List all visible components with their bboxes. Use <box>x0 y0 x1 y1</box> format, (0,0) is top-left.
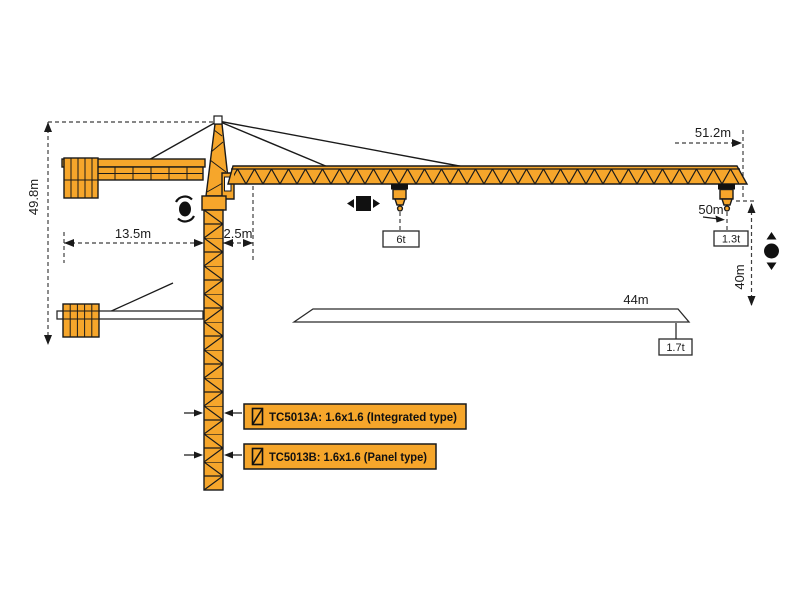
crane-diagram-page: 49.8m 13.5m 2.5m 51.2m 40m 50m <box>0 0 800 600</box>
max-load-tag: 6t <box>383 231 419 247</box>
dim-mid-radius-label: 44m <box>623 292 648 307</box>
tip-load-value: 1.3t <box>722 234 740 246</box>
dim-counter-jib-label: 13.5m <box>115 226 151 241</box>
slewing-platform <box>202 196 226 210</box>
dim-lift-height-label: 40m <box>732 264 747 289</box>
trolley-travel-icon <box>347 196 380 211</box>
mid-load-value: 1.7t <box>666 342 684 354</box>
load-curve-beam: 44m 1.7t <box>294 292 692 355</box>
tower-mast <box>204 210 223 490</box>
dimension-50m: 50m <box>698 202 725 223</box>
mid-hook-icon <box>398 206 403 211</box>
mid-trolley <box>391 184 408 231</box>
apex-pin <box>214 116 222 124</box>
mast-type-label-integrated: TC5013A: 1.6x1.6 (Integrated type) <box>244 404 466 429</box>
ballast-block <box>63 304 99 337</box>
tip-hook-icon <box>725 206 730 211</box>
max-load-value: 6t <box>396 234 405 246</box>
ballast-assembly <box>57 283 203 337</box>
tower-crane-diagram: 49.8m 13.5m 2.5m 51.2m 40m 50m <box>0 0 800 600</box>
dim-max-height-label: 49.8m <box>26 179 41 215</box>
mast-type-integrated-text: TC5013A: 1.6x1.6 (Integrated type) <box>269 412 457 424</box>
slewing-icon <box>176 197 194 222</box>
dimension-40m: 40m <box>732 201 756 306</box>
mast-type-panel-text: TC5013B: 1.6x1.6 (Panel type) <box>269 452 427 464</box>
jib <box>228 166 747 184</box>
dim-rear-offset-label: 2.5m <box>224 226 253 241</box>
dimension-13-5m: 13.5m <box>64 226 204 263</box>
dim-trolley-range-label: 50m <box>698 202 723 217</box>
counterweight-block <box>64 158 98 198</box>
tip-load-tag: 1.3t <box>714 231 748 246</box>
mast-type-label-panel: TC5013B: 1.6x1.6 (Panel type) <box>244 444 436 469</box>
hoisting-icon <box>764 232 779 270</box>
dim-max-radius-label: 51.2m <box>695 125 731 140</box>
ballast-tie-line <box>107 283 173 313</box>
counter-jib <box>62 158 205 198</box>
